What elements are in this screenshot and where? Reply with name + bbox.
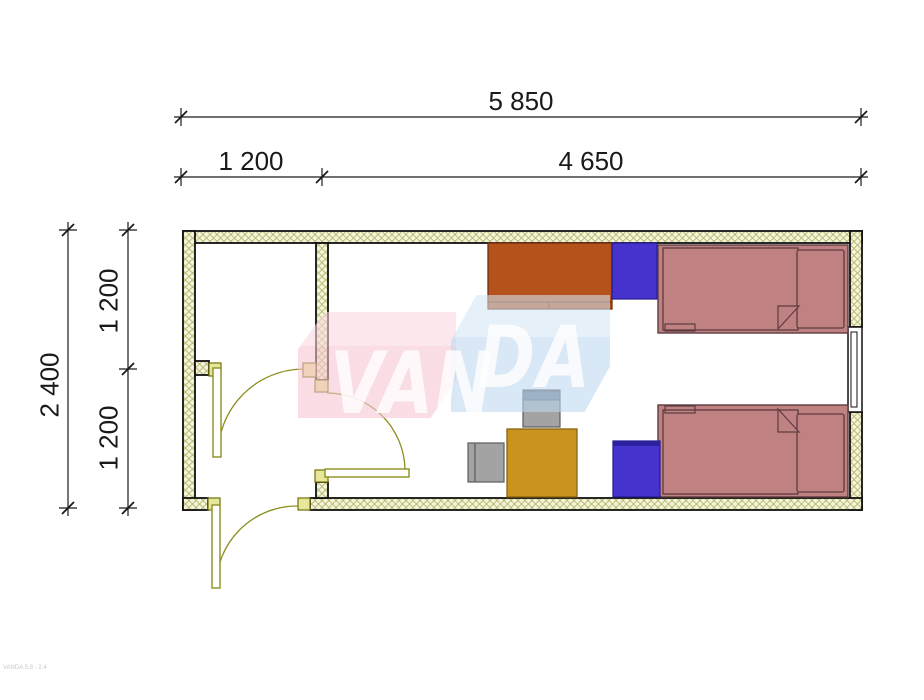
dim-overall-depth: 2 400 xyxy=(35,305,66,465)
floor-plan-page: VAN DA 5 850 1 200 4 650 2 400 1 200 1 2… xyxy=(0,0,924,700)
nightstand-bottom xyxy=(613,441,660,497)
nightstand-top xyxy=(612,243,657,299)
bed-top xyxy=(658,245,848,333)
footer-note: VANDA 5.8 - 2.4 xyxy=(3,665,47,671)
watermark-text-left: VAN xyxy=(330,341,494,427)
dim-depth-lower: 1 200 xyxy=(94,358,125,518)
chair-side xyxy=(468,443,504,482)
dim-room-width: 4 650 xyxy=(491,146,691,177)
desk xyxy=(507,429,577,497)
vestibule-door xyxy=(213,368,303,457)
dim-vestibule-width: 1 200 xyxy=(151,146,351,177)
window xyxy=(848,327,862,412)
watermark-text-right: DA xyxy=(478,315,592,401)
dim-depth-upper: 1 200 xyxy=(94,221,125,381)
bed-bottom xyxy=(658,405,848,497)
dim-overall-width: 5 850 xyxy=(421,86,621,117)
entrance-door xyxy=(212,505,298,588)
